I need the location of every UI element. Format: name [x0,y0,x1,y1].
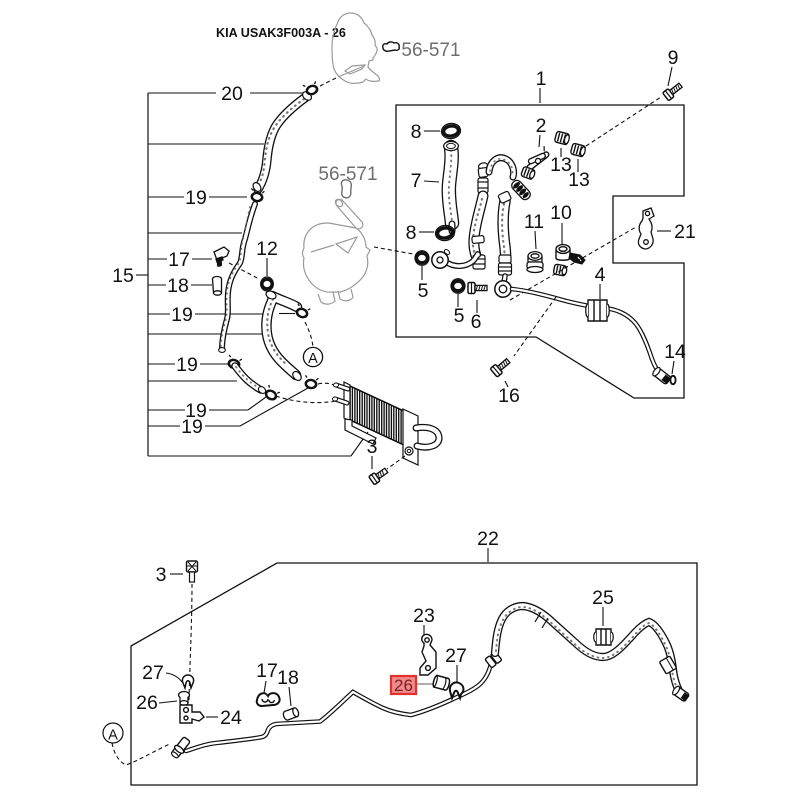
svg-text:6: 6 [471,311,482,333]
svg-text:23: 23 [413,605,435,627]
svg-text:KIA USAK3F003A - 26: KIA USAK3F003A - 26 [216,26,346,40]
svg-text:5: 5 [454,305,465,327]
svg-text:27: 27 [142,662,164,684]
svg-text:19: 19 [181,416,203,438]
svg-text:10: 10 [550,202,572,224]
svg-text:26: 26 [136,692,158,714]
svg-text:26: 26 [394,676,413,695]
svg-text:A: A [108,728,118,744]
svg-text:7: 7 [411,170,422,192]
svg-text:1: 1 [536,68,547,90]
svg-text:22: 22 [477,528,499,550]
svg-text:A: A [308,351,318,367]
svg-text:12: 12 [256,238,278,260]
svg-text:56-571: 56-571 [318,164,377,185]
svg-text:18: 18 [277,667,299,689]
svg-text:27: 27 [445,645,467,667]
svg-text:3: 3 [156,564,167,586]
svg-text:20: 20 [221,83,243,105]
svg-text:17: 17 [256,660,278,682]
svg-text:2: 2 [536,115,547,137]
svg-text:25: 25 [592,587,614,609]
svg-text:15: 15 [112,265,134,287]
svg-text:16: 16 [498,385,520,407]
svg-text:9: 9 [668,47,679,69]
svg-text:56-571: 56-571 [401,40,460,61]
svg-text:19: 19 [176,354,198,376]
svg-text:24: 24 [220,707,242,729]
svg-text:11: 11 [524,211,544,233]
svg-text:14: 14 [664,341,686,363]
svg-text:3: 3 [367,436,378,458]
svg-text:8: 8 [406,222,417,244]
svg-text:18: 18 [167,275,189,297]
svg-text:4: 4 [595,264,606,286]
svg-text:5: 5 [418,280,429,302]
svg-text:19: 19 [185,187,207,209]
svg-text:19: 19 [171,304,193,326]
svg-text:21: 21 [674,221,696,243]
svg-text:13: 13 [568,169,590,191]
svg-text:8: 8 [411,121,422,143]
svg-text:17: 17 [168,249,190,271]
